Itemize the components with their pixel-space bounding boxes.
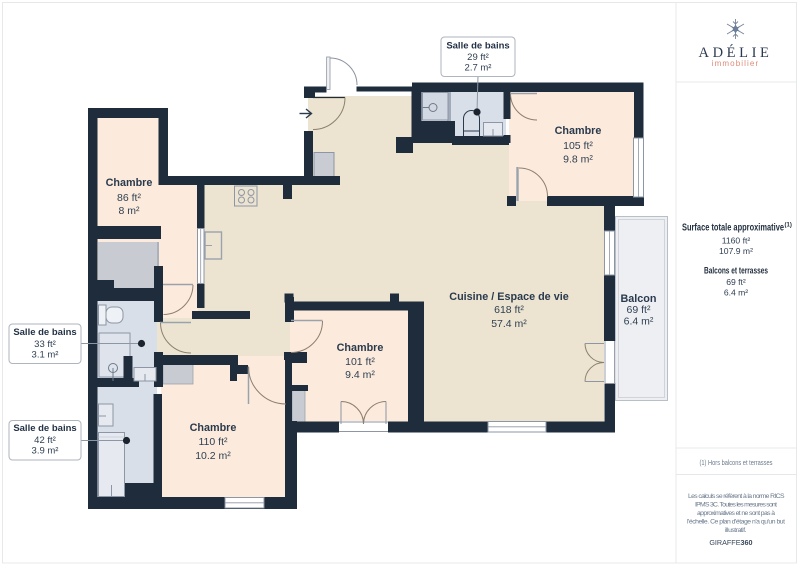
svg-text:approximatives et ne sont pas: approximatives et ne sont pas à [697,510,775,517]
svg-text:110 ft²: 110 ft² [199,436,228,448]
svg-text:GIRAFFE: GIRAFFE [709,538,740,547]
svg-text:29 ft²: 29 ft² [467,52,489,63]
svg-text:Chambre: Chambre [106,177,153,189]
svg-text:Chambre: Chambre [337,342,384,354]
svg-text:(1) Hors balcons et terrasses: (1) Hors balcons et terrasses [700,458,773,467]
svg-text:8 m²: 8 m² [119,205,141,217]
svg-text:IPMS 3C. Toutes les mesures so: IPMS 3C. Toutes les mesures sont [695,502,777,509]
svg-text:33 ft²: 33 ft² [34,339,56,350]
svg-text:57.4 m²: 57.4 m² [491,318,527,330]
svg-text:6.4 m²: 6.4 m² [724,288,748,298]
svg-text:360: 360 [741,538,753,547]
svg-text:3.1 m²: 3.1 m² [32,350,59,361]
svg-text:3.9 m²: 3.9 m² [32,446,59,457]
svg-text:Cuisine / Espace de vie: Cuisine / Espace de vie [449,291,568,303]
svg-text:Salle de bains: Salle de bains [13,423,76,434]
svg-text:42 ft²: 42 ft² [34,435,56,446]
svg-text:Salle de bains: Salle de bains [446,41,509,52]
svg-text:Salle de bains: Salle de bains [13,327,76,338]
svg-text:107.9 m²: 107.9 m² [719,246,753,256]
svg-text:6.4 m²: 6.4 m² [624,316,654,328]
svg-text:Les calculs se réfèrent à la n: Les calculs se réfèrent à la norme RICS [688,493,785,500]
svg-text:69 ft²: 69 ft² [627,304,651,316]
svg-text:86 ft²: 86 ft² [117,192,141,204]
svg-text:9.4 m²: 9.4 m² [345,369,375,381]
svg-text:2.7 m²: 2.7 m² [465,63,492,74]
svg-text:10.2 m²: 10.2 m² [195,450,231,462]
svg-text:1160 ft²: 1160 ft² [722,236,751,246]
svg-text:101 ft²: 101 ft² [345,356,375,368]
svg-text:illustratif.: illustratif. [725,527,747,534]
svg-text:618 ft²: 618 ft² [494,304,524,316]
svg-text:Balcons et terrasses: Balcons et terrasses [704,266,768,276]
svg-text:Chambre: Chambre [555,125,602,137]
svg-text:Surface totale approximative: Surface totale approximative [682,223,784,234]
svg-text:Chambre: Chambre [190,422,237,434]
svg-text:l'échelle. Ce plan d'étage n'a: l'échelle. Ce plan d'étage n'a qu'un but [687,519,785,526]
svg-text:9.8 m²: 9.8 m² [563,154,593,166]
svg-text:immobilier: immobilier [712,59,759,68]
svg-text:(1): (1) [785,223,792,229]
svg-text:105 ft²: 105 ft² [563,140,593,152]
svg-text:69 ft²: 69 ft² [726,277,746,287]
